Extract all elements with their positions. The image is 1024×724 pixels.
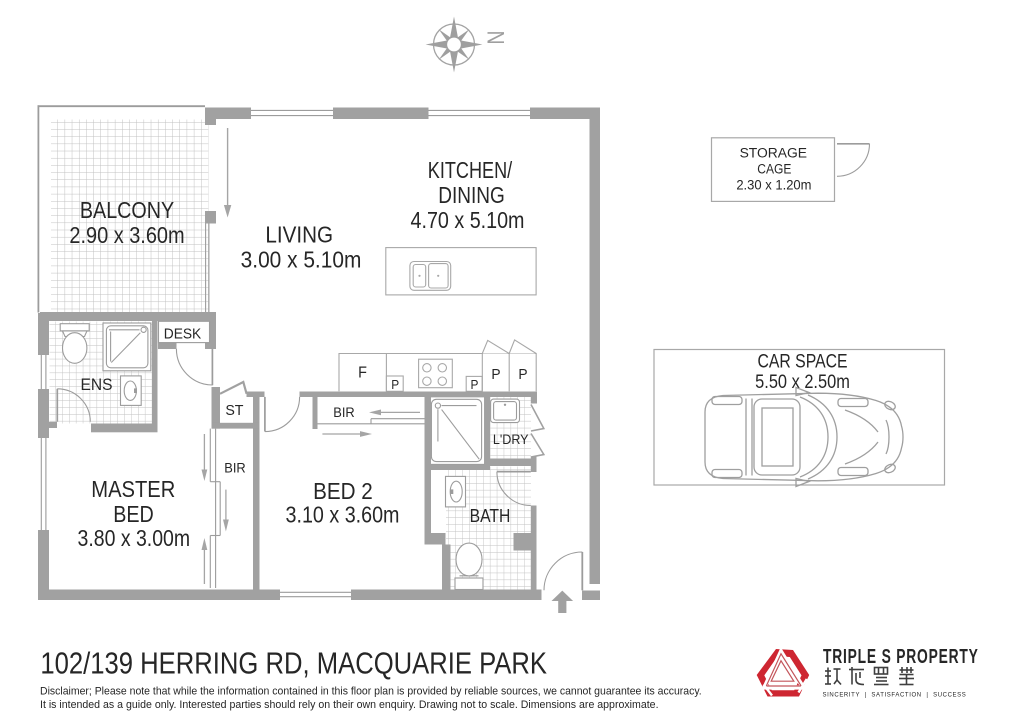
svg-text:CAR SPACE: CAR SPACE	[757, 350, 847, 372]
svg-text:2.90 x 3.60m: 2.90 x 3.60m	[69, 221, 184, 248]
svg-text:BIR: BIR	[333, 405, 355, 421]
svg-text:3.00 x 5.10m: 3.00 x 5.10m	[241, 246, 362, 272]
svg-text:BALCONY: BALCONY	[80, 197, 174, 223]
svg-text:102/139 HERRING RD, MACQUARIE: 102/139 HERRING RD, MACQUARIE PARK	[40, 645, 547, 680]
svg-text:ENS: ENS	[81, 377, 113, 394]
svg-text:STORAGE: STORAGE	[740, 145, 807, 161]
svg-text:3.10 x 3.60m: 3.10 x 3.60m	[286, 502, 400, 528]
svg-text:BED: BED	[113, 502, 154, 528]
svg-text:P: P	[518, 366, 527, 382]
svg-text:4.70 x 5.10m: 4.70 x 5.10m	[411, 207, 525, 233]
svg-text:BIR: BIR	[224, 460, 246, 476]
svg-text:BED 2: BED 2	[313, 478, 373, 504]
svg-text:DESK: DESK	[164, 325, 202, 341]
svg-text:KITCHEN/: KITCHEN/	[428, 158, 513, 184]
svg-text:BATH: BATH	[470, 505, 511, 527]
svg-text:MASTER: MASTER	[91, 476, 175, 503]
svg-text:F: F	[358, 364, 367, 382]
svg-text:P: P	[391, 378, 399, 392]
svg-text:CAGE: CAGE	[757, 161, 791, 177]
svg-text:L'DRY: L'DRY	[493, 432, 529, 448]
svg-text:P: P	[471, 378, 479, 392]
svg-text:3.80 x 3.00m: 3.80 x 3.00m	[78, 526, 191, 552]
svg-text:5.50 x 2.50m: 5.50 x 2.50m	[755, 371, 850, 393]
svg-text:TRIPLE S PROPERTY: TRIPLE S PROPERTY	[823, 644, 979, 667]
svg-text:Disclaimer; Please note that w: Disclaimer; Please note that while the i…	[40, 685, 702, 697]
svg-text:ST: ST	[225, 403, 243, 419]
svg-text:2.30 x 1.20m: 2.30 x 1.20m	[736, 177, 811, 193]
svg-text:DINING: DINING	[438, 183, 505, 208]
svg-text:LIVING: LIVING	[265, 221, 333, 247]
svg-text:P: P	[491, 366, 500, 382]
svg-text:SINCERITY | SATISFACTION |: SINCERITY | SATISFACTION | SUCCESS	[823, 692, 967, 698]
svg-text:N: N	[482, 31, 510, 45]
svg-text:It is intended as a guide only: It is intended as a guide only. Interest…	[40, 699, 659, 711]
